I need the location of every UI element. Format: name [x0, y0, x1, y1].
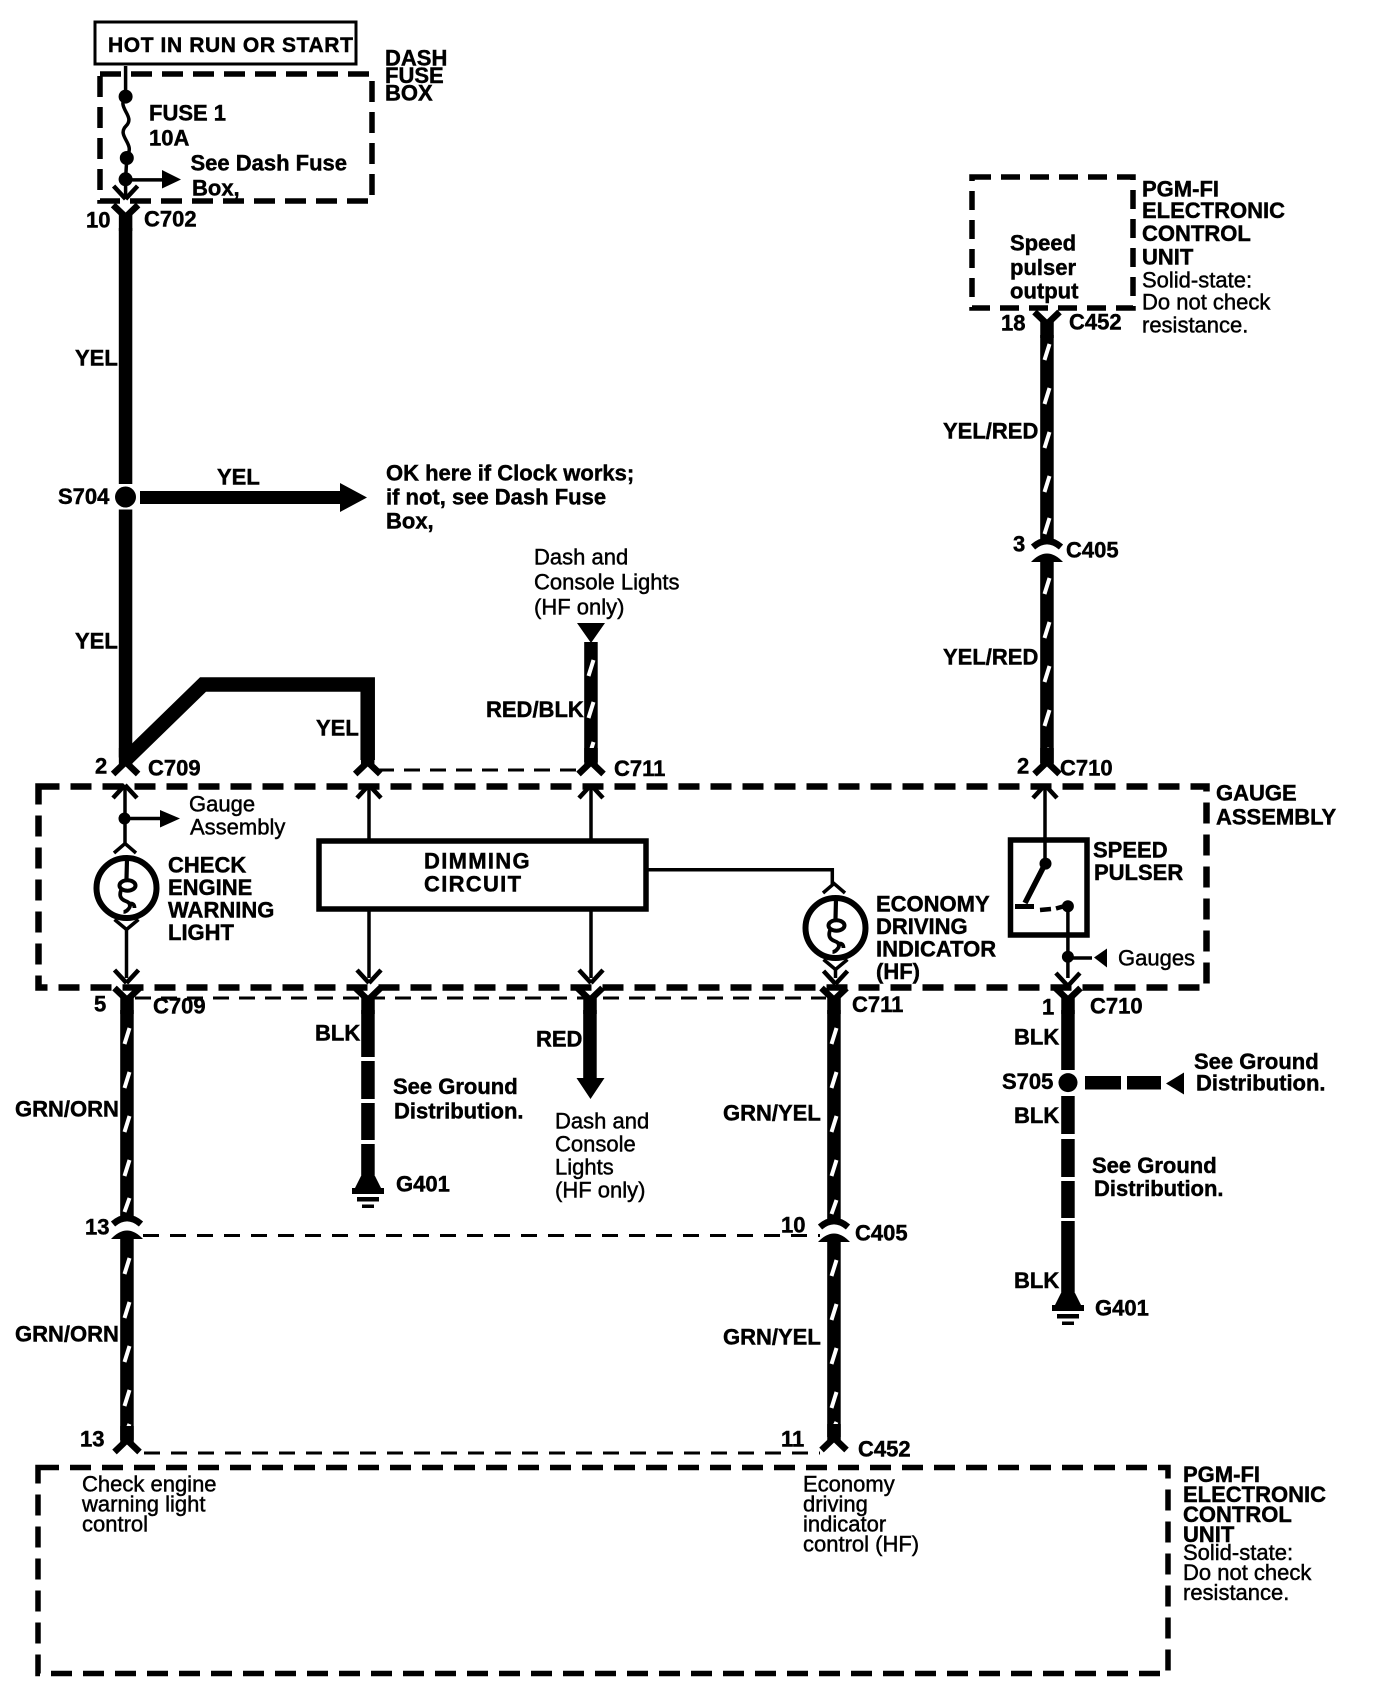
svg-text:YEL: YEL: [316, 716, 359, 741]
svg-text:C711: C711: [614, 756, 665, 781]
svg-text:18: 18: [1001, 311, 1025, 336]
svg-text:GRN/ORN: GRN/ORN: [15, 1097, 119, 1122]
svg-text:YEL: YEL: [217, 465, 260, 490]
svg-text:C452: C452: [1069, 310, 1122, 335]
svg-text:PULSER: PULSER: [1094, 860, 1183, 885]
svg-text:(HF only): (HF only): [534, 595, 624, 620]
svg-text:G401: G401: [396, 1172, 450, 1197]
svg-text:OK here if Clock works;: OK here if Clock works;: [386, 461, 634, 486]
svg-text:ECONOMY: ECONOMY: [876, 892, 990, 917]
svg-text:resistance.: resistance.: [1183, 1580, 1289, 1605]
svg-text:C709: C709: [153, 994, 206, 1019]
svg-text:GRN/ORN: GRN/ORN: [15, 1322, 119, 1347]
svg-text:output: output: [1010, 279, 1079, 304]
svg-text:GRN/YEL: GRN/YEL: [723, 1325, 821, 1350]
svg-text:GAUGE: GAUGE: [1216, 781, 1297, 806]
svg-text:2: 2: [95, 754, 107, 779]
svg-text:C710: C710: [1090, 994, 1143, 1019]
svg-text:10: 10: [781, 1213, 805, 1238]
svg-text:YEL: YEL: [75, 629, 118, 654]
svg-text:HOT IN RUN OR START: HOT IN RUN OR START: [108, 34, 354, 57]
svg-text:C711: C711: [852, 992, 903, 1017]
svg-text:(HF only): (HF only): [555, 1178, 645, 1203]
svg-text:BLK: BLK: [1014, 1025, 1059, 1050]
svg-text:resistance.: resistance.: [1142, 313, 1248, 338]
svg-text:CHECK: CHECK: [168, 853, 246, 878]
svg-text:See Ground: See Ground: [393, 1074, 518, 1099]
svg-text:S704: S704: [58, 484, 110, 509]
svg-text:S705: S705: [1002, 1069, 1053, 1094]
svg-text:See Ground: See Ground: [1092, 1153, 1217, 1178]
svg-text:C405: C405: [1066, 538, 1119, 563]
svg-text:DIMMING: DIMMING: [424, 849, 531, 874]
svg-text:Speed: Speed: [1010, 231, 1076, 256]
svg-text:UNIT: UNIT: [1142, 245, 1194, 270]
svg-text:1: 1: [1042, 995, 1054, 1020]
svg-text:5: 5: [94, 992, 106, 1017]
svg-text:Lights: Lights: [555, 1155, 614, 1180]
svg-text:Dash and: Dash and: [534, 545, 628, 570]
svg-text:BLK: BLK: [1014, 1268, 1059, 1293]
svg-text:C710: C710: [1060, 756, 1113, 781]
svg-text:2: 2: [1017, 754, 1029, 779]
svg-text:LIGHT: LIGHT: [168, 920, 235, 945]
svg-text:Gauge: Gauge: [189, 792, 255, 817]
svg-text:CONTROL: CONTROL: [1142, 221, 1251, 246]
svg-text:Box,: Box,: [192, 176, 240, 201]
svg-text:Distribution.: Distribution.: [1196, 1071, 1326, 1096]
svg-text:G401: G401: [1095, 1296, 1149, 1321]
svg-text:ELECTRONIC: ELECTRONIC: [1142, 198, 1285, 223]
svg-text:YEL/RED: YEL/RED: [943, 645, 1038, 670]
svg-text:10A: 10A: [149, 126, 189, 151]
svg-text:C709: C709: [148, 756, 201, 781]
svg-text:BLK: BLK: [315, 1021, 360, 1046]
svg-text:Gauges: Gauges: [1118, 946, 1195, 971]
svg-text:Console Lights: Console Lights: [534, 570, 680, 595]
svg-text:13: 13: [80, 1427, 104, 1452]
svg-text:control: control: [82, 1512, 148, 1537]
svg-text:10: 10: [86, 208, 110, 233]
svg-text:Distribution.: Distribution.: [394, 1099, 524, 1124]
svg-text:ASSEMBLY: ASSEMBLY: [1216, 805, 1337, 830]
svg-text:BOX: BOX: [385, 81, 433, 106]
svg-text:(HF): (HF): [876, 959, 920, 984]
svg-text:FUSE 1: FUSE 1: [149, 101, 226, 126]
svg-text:Assembly: Assembly: [190, 815, 285, 840]
svg-text:Distribution.: Distribution.: [1094, 1176, 1224, 1201]
svg-text:CIRCUIT: CIRCUIT: [424, 872, 522, 897]
svg-text:11: 11: [781, 1427, 804, 1452]
svg-text:Console: Console: [555, 1132, 636, 1157]
svg-text:Dash and: Dash and: [555, 1109, 649, 1134]
svg-text:BLK: BLK: [1014, 1103, 1059, 1128]
svg-text:control (HF): control (HF): [803, 1532, 919, 1557]
svg-text:See Dash Fuse: See Dash Fuse: [191, 151, 348, 176]
svg-text:ENGINE: ENGINE: [168, 875, 252, 900]
svg-text:SPEED: SPEED: [1093, 838, 1168, 863]
svg-text:C405: C405: [855, 1221, 908, 1246]
svg-text:YEL: YEL: [75, 346, 118, 371]
svg-text:C452: C452: [858, 1437, 911, 1462]
svg-text:if not, see Dash Fuse: if not, see Dash Fuse: [386, 485, 606, 510]
svg-text:Box,: Box,: [386, 509, 434, 534]
svg-text:Do not check: Do not check: [1142, 290, 1271, 315]
svg-text:RED/BLK: RED/BLK: [486, 697, 584, 722]
svg-text:YEL/RED: YEL/RED: [943, 419, 1038, 444]
svg-text:WARNING: WARNING: [168, 898, 274, 923]
svg-text:GRN/YEL: GRN/YEL: [723, 1101, 821, 1126]
svg-text:RED: RED: [536, 1027, 582, 1052]
svg-text:3: 3: [1013, 532, 1025, 557]
svg-text:pulser: pulser: [1010, 255, 1076, 280]
svg-text:13: 13: [85, 1215, 109, 1240]
svg-text:C702: C702: [144, 207, 197, 232]
svg-text:INDICATOR: INDICATOR: [876, 937, 996, 962]
svg-text:DRIVING: DRIVING: [876, 914, 968, 939]
